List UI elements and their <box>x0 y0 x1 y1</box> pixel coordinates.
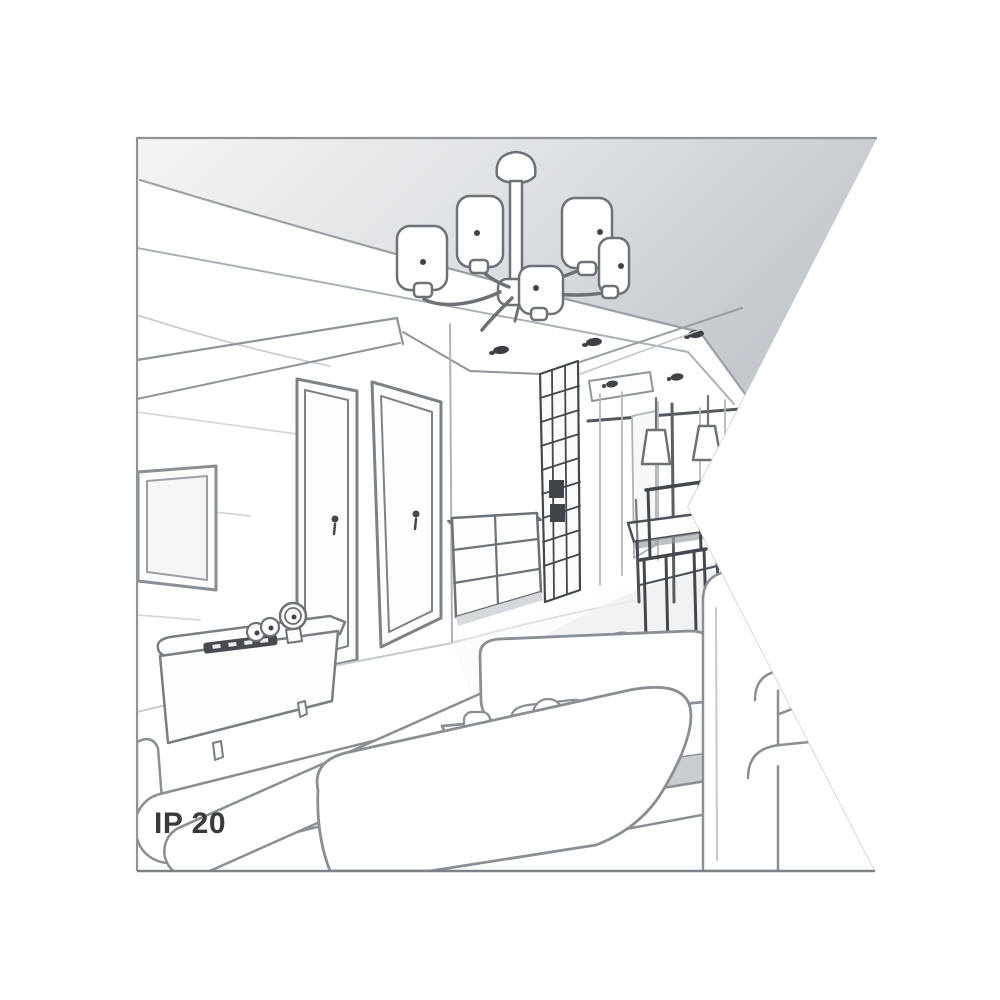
wall-corner <box>450 324 452 642</box>
chandelier-canopy <box>497 152 536 183</box>
product-illustration: IP 20 <box>0 0 1000 1000</box>
hall-pole <box>672 404 674 602</box>
lattice-screen <box>540 361 580 602</box>
tv-panel <box>138 466 216 590</box>
chest-of-drawers <box>448 513 543 626</box>
hall-light-panel <box>589 372 653 401</box>
pendant-lamps <box>642 396 721 464</box>
interior-door-right <box>372 382 441 647</box>
ip-rating-label: IP 20 <box>154 807 226 840</box>
room-line-drawing: IP 20 <box>0 0 1000 1000</box>
armrest-sofa <box>703 568 840 871</box>
hall-beam <box>588 409 740 421</box>
recessed-spotlights <box>489 329 704 355</box>
door-handle <box>332 516 339 523</box>
chandelier-stem <box>510 181 522 283</box>
media-sideboard <box>158 603 345 760</box>
door-handle <box>413 511 420 518</box>
